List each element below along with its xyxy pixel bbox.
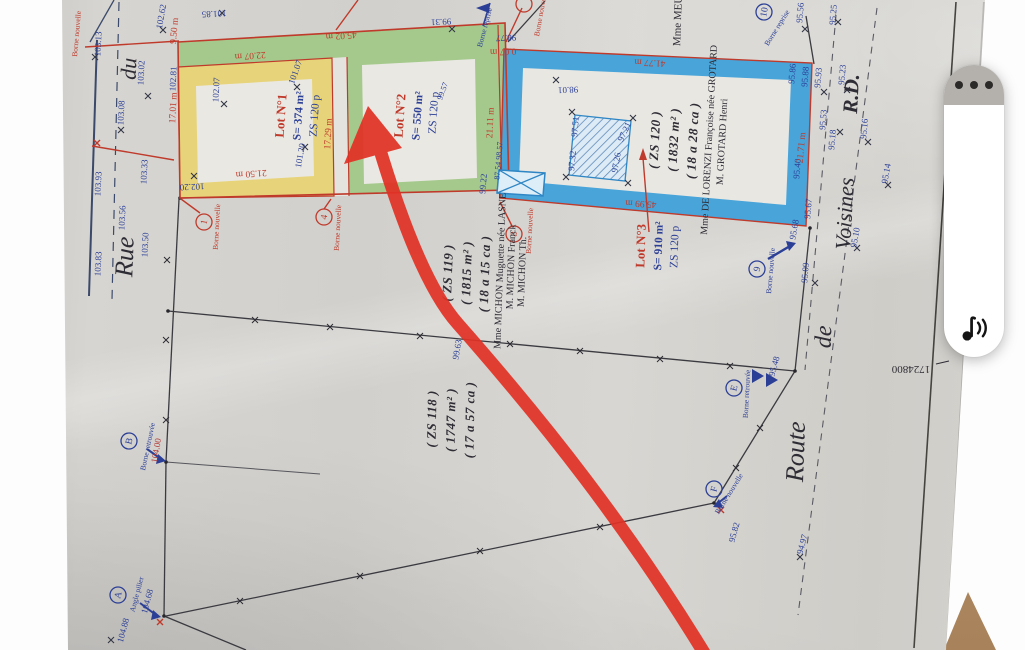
survey-plan: 1 4 8 9 10 A B E F Borne nouvelle Borne … [0,0,1025,650]
elevation: 103.50 [139,232,150,258]
elevation: 95.09 [799,262,811,284]
grid-coordinate: 1724800 [891,363,930,375]
measurement: 21.11 m [485,107,497,139]
measurement: 45.99 m [624,197,656,209]
parcel-ref: ( ZS 120 ) [645,110,663,169]
elevation: 103.13 [92,31,103,57]
elevation: 103.33 [138,159,149,185]
elevation: 95.82 [727,521,742,543]
elevation: 95.56 [794,2,806,24]
street-du: du [116,57,142,80]
elevation: 95.48 [767,355,782,378]
elevation: 95.86 [786,63,798,85]
elevation: 94.97 [795,533,810,556]
borne-F: F [709,485,720,493]
elevation: 97.51 [569,116,581,137]
street-route: Route [780,421,811,484]
borne-A: A [113,591,124,600]
borne-4: 4 [320,214,331,221]
parcel-area: ( 17 a 57 ca ) [461,381,477,458]
viewer-screen: 1 4 8 9 10 A B E F Borne nouvelle Borne … [0,0,1025,650]
parcel-ref: ( ZS 118 ) [424,390,440,448]
elevation: 98.77 [495,33,516,44]
lot-divider-strip [332,57,349,196]
dot-icon [985,81,993,89]
lot3-zoning: ZS 120 p [668,225,681,268]
parcel-area: ( 18 a 15 ca ) [476,235,494,312]
elevation: 97.32 [566,150,578,171]
music-note-sound-icon [955,309,993,347]
street-rd: R.D. [838,73,864,115]
plan-photo[interactable]: 1 4 8 9 10 A B E F Borne nouvelle Borne … [0,0,1025,650]
street-rue: Rue [109,236,139,278]
elevation: 95.67 [802,198,814,220]
elevation: 103.08 [115,100,126,126]
elevation: 95.18 [826,129,838,151]
elevation: 102.81 [167,66,178,91]
owner: M. MICHON Th. [516,237,529,308]
elevation: 102.07 [210,77,221,103]
elevation: 102.62 [154,3,168,29]
elevation: 95.53 [817,109,829,131]
lot3-area: S= 910 m² [652,221,666,271]
measurement: 17.01 m [168,91,180,123]
measurement: 45.02 m [325,29,357,41]
lot3-name: Lot N°3 [632,223,649,268]
elevation: 95.14 [879,162,892,184]
read-aloud-button[interactable] [951,305,997,351]
elevation: 103.83 [92,251,103,277]
elevation: 99.63 [450,338,463,360]
dot-icon [955,81,963,89]
borne-1: 1 [200,219,211,226]
measurement: 17.29 m [323,117,335,149]
floating-toolbar [944,65,1004,357]
measurement: 41.77 m [633,56,665,68]
borne-note: Borne nouvelle [211,203,222,250]
elevation: 95.16 [858,118,870,140]
borne-note: Borne retrouvée [741,369,753,419]
elevation: 95.25 [827,4,839,26]
borne-note: Borne nouvelle [532,0,549,37]
elevation: 95.68 [787,218,800,240]
elevation: 103.56 [116,205,127,231]
elevation: 104.88 [115,616,131,643]
elevation: 101.85 [201,8,227,19]
elevation: 98.01 [558,85,579,96]
elevation: 95.93 [812,67,824,89]
borne-B: B [124,437,135,446]
borne-note: Borne nouvelle [332,204,343,251]
elevation: 99.22 [477,173,489,194]
lot2-name: Lot N°2 [391,93,409,138]
borne-9: 9 [753,266,764,273]
borne-E: E [729,384,740,392]
measurement: 0.07 m [489,46,516,57]
elevation: 103.93 [92,171,103,197]
elevation: 99.31 [431,16,452,27]
borne-note: Borne nouvelle [764,247,777,294]
lot1-name: Lot N°1 [272,93,290,138]
dot-icon [970,81,978,89]
street-voisines: Voisines [830,177,859,250]
borne-note: Borne nouvelle [70,10,83,57]
neighbor-owner: Mme MEU [671,0,685,46]
parcel-area: ( 1815 m² ) [458,241,475,305]
borne-10: 10 [759,6,771,17]
street-de: de [811,325,838,349]
elevation: 102.20 [179,181,205,192]
measurement: 9.50 m [169,17,181,45]
elevation: 95.88 [799,66,811,88]
parcel-area: ( 1747 m² ) [442,388,458,452]
